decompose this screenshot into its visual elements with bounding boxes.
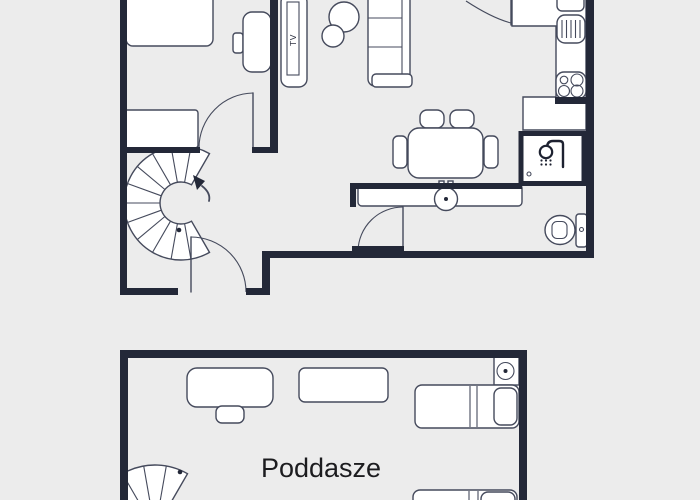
attic-water-heater [494,357,519,385]
wall-right [586,0,594,258]
attic-plan: Poddasze [90,350,527,500]
attic-desk-chair [216,406,244,423]
arrow-tail [202,186,209,201]
heater-dot [504,369,508,373]
stool [322,25,344,47]
floor-plan-canvas: TV [0,0,700,500]
kitchen [512,0,586,130]
stairs-up-arrow [193,175,209,201]
upper-floor-plan: TV [120,0,594,295]
kitchen-sink [557,0,584,11]
tv-label: TV [288,34,298,46]
wall-bedroom-bottom [120,147,200,153]
dining-chair-left [393,136,407,168]
floor-plan-svg: TV [0,0,700,500]
attic-wall-left [120,350,128,500]
sofa-base [372,74,412,87]
dining-chair-top-1 [420,110,444,128]
attic-bed-1 [415,385,519,428]
double-bed [126,0,213,46]
attic-wall-top [120,350,527,358]
cooktop [556,72,586,99]
bed-pillow [494,388,517,425]
wall-bottom-right [262,251,594,258]
attic-side-table [299,368,388,402]
dining-set [393,110,498,178]
dresser [124,110,198,148]
toilet [545,214,587,247]
wall-bedroom-stub [252,147,278,153]
attic-wall-right [519,350,527,500]
wall-bathroom-top [352,183,522,189]
wall-bedroom-living [270,0,278,150]
desk-chair-tab [233,33,243,53]
toilet-bowl [545,216,575,245]
wall-bottom-left [120,288,178,295]
wall-bathroom-left-stub [350,183,356,207]
dining-chair-top-2 [450,110,474,128]
wall-kitchen-stub [555,97,586,104]
attic-staircase-fan [90,465,187,500]
bathroom-door-swing [358,207,403,251]
dining-chair-right [484,136,498,168]
desk-chair [243,12,271,72]
dining-table [408,128,483,178]
bed-pillow [481,492,515,500]
sofa [368,0,412,87]
spiral-staircase [124,146,210,260]
attic-spiral-staircase [90,465,188,500]
attic-bed-2 [413,490,517,500]
sofa-body [368,0,410,86]
attic-desk [187,368,273,407]
bedroom-door-swing [199,93,253,148]
attic-staircase-dot [178,470,183,475]
basin-drain [444,197,448,201]
bathroom-door-threshold [352,246,404,251]
staircase-post-dot [177,228,182,233]
toilet-tank [576,214,587,247]
attic-title: Poddasze [261,453,381,483]
kitchen-door-swing [466,1,511,23]
dish-rack [557,15,585,43]
